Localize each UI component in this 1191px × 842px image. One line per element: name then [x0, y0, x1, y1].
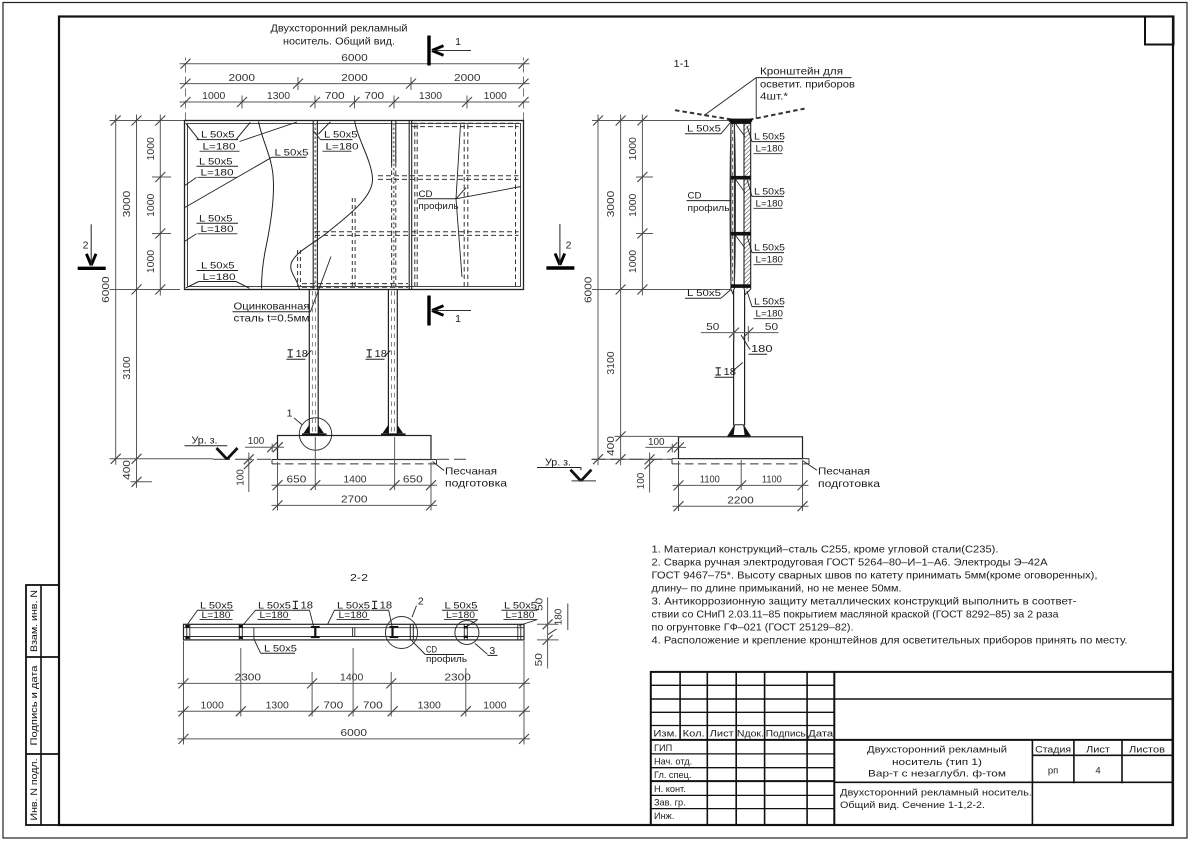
svg-text:ГИП: ГИП [654, 743, 672, 753]
svg-text:400: 400 [121, 460, 133, 480]
svg-text:Двухсторонний рекламный: Двухсторонний рекламный [867, 744, 1007, 755]
svg-text:1100: 1100 [762, 474, 782, 486]
svg-text:ствии со СНиП 2.03.11–85 покры: ствии со СНиП 2.03.11–85 покрытием масля… [652, 609, 1059, 621]
svg-text:осветит. приборов: осветит. приборов [760, 79, 855, 91]
svg-text:6000: 6000 [341, 52, 368, 64]
svg-text:1000: 1000 [627, 193, 639, 216]
svg-text:1000: 1000 [483, 700, 506, 712]
svg-text:профиль: профиль [426, 654, 467, 665]
svg-text:1300: 1300 [418, 700, 441, 712]
svg-text:1300: 1300 [267, 90, 290, 102]
svg-text:Двухсторонний рекламный: Двухсторонний рекламный [271, 23, 408, 35]
svg-text:4шт.*: 4шт.* [760, 91, 788, 103]
svg-text:L 50x5: L 50x5 [324, 130, 358, 141]
svg-text:1100: 1100 [700, 474, 720, 486]
svg-text:1000: 1000 [145, 193, 157, 216]
svg-text:L 50x5: L 50x5 [199, 213, 233, 224]
svg-text:Н. конт.: Н. конт. [654, 784, 686, 794]
svg-text:Вар-т с незаглубл. ф-том: Вар-т с незаглубл. ф-том [868, 769, 1006, 780]
svg-text:L 50x5: L 50x5 [275, 147, 309, 158]
svg-text:650: 650 [403, 473, 423, 485]
svg-text:6000: 6000 [583, 276, 595, 303]
svg-text:Изм.: Изм. [653, 728, 677, 738]
svg-text:L 50x5: L 50x5 [687, 124, 721, 135]
svg-text:Лист: Лист [1086, 745, 1110, 755]
svg-text:L=180: L=180 [756, 255, 784, 266]
svg-text:L 50x5: L 50x5 [754, 297, 785, 308]
svg-text:подготовка: подготовка [818, 478, 880, 490]
svg-text:2000: 2000 [454, 72, 481, 84]
svg-text:50: 50 [706, 321, 719, 333]
svg-text:18: 18 [724, 366, 737, 378]
svg-text:3100: 3100 [121, 356, 133, 379]
svg-text:18: 18 [380, 599, 393, 611]
svg-text:Нач. отд.: Нач. отд. [654, 757, 692, 767]
svg-text:6000: 6000 [100, 276, 112, 303]
svg-text:Подпись и дата: Подпись и дата [29, 666, 39, 746]
svg-text:2700: 2700 [341, 494, 368, 506]
svg-text:1000: 1000 [627, 137, 639, 160]
svg-text:1400: 1400 [343, 473, 366, 485]
svg-text:Общий вид. Сечение 1-1,2-2.: Общий вид. Сечение 1-1,2-2. [840, 800, 985, 811]
svg-text:L 50x5: L 50x5 [199, 156, 233, 167]
svg-text:L 50x5: L 50x5 [201, 261, 235, 272]
svg-text:1400: 1400 [340, 672, 363, 684]
svg-text:носитель. Общий вид.: носитель. Общий вид. [283, 36, 395, 48]
svg-text:1000: 1000 [145, 250, 157, 273]
svg-text:ГОСТ 9467–75*. Высоту сварных: ГОСТ 9467–75*. Высоту сварных швов по ка… [652, 570, 1098, 582]
svg-text:650: 650 [287, 473, 307, 485]
svg-text:100: 100 [648, 436, 665, 448]
svg-text:носитель (тип 1): носитель (тип 1) [892, 757, 982, 768]
svg-text:Гл. спец.: Гл. спец. [654, 770, 691, 780]
svg-text:2200: 2200 [727, 494, 754, 506]
svg-text:3100: 3100 [605, 351, 617, 374]
svg-text:Кронштейн для: Кронштейн для [760, 66, 843, 78]
svg-text:Двухсторонний рекламный носите: Двухсторонний рекламный носитель. [840, 788, 1032, 799]
svg-text:Песчаная: Песчаная [818, 465, 870, 477]
svg-text:L=180: L=180 [756, 144, 784, 155]
svg-text:1. Материал конструкций–сталь: 1. Материал конструкций–сталь С255, кром… [652, 544, 999, 556]
svg-text:Ур. з.: Ур. з. [192, 436, 218, 447]
svg-text:Листов: Листов [1129, 745, 1165, 755]
svg-text:180: 180 [751, 343, 773, 355]
svg-text:1000: 1000 [145, 137, 157, 160]
svg-text:700: 700 [364, 90, 384, 102]
svg-text:рп: рп [1048, 766, 1058, 777]
svg-text:Стадия: Стадия [1035, 745, 1071, 755]
svg-text:100: 100 [234, 469, 246, 486]
svg-text:L 50x5: L 50x5 [754, 243, 785, 254]
svg-text:2000: 2000 [341, 72, 368, 84]
svg-text:L 50x5: L 50x5 [687, 288, 721, 299]
svg-text:180: 180 [553, 609, 565, 626]
svg-text:2300: 2300 [235, 672, 262, 684]
svg-text:CD: CD [688, 191, 702, 202]
svg-text:1000: 1000 [484, 90, 507, 102]
svg-text:50: 50 [765, 321, 778, 333]
svg-text:подготовка: подготовка [445, 477, 507, 489]
svg-text:L 50x5: L 50x5 [201, 130, 235, 141]
svg-text:Оцинкованная: Оцинкованная [234, 301, 310, 313]
svg-text:сталь t=0.5мм: сталь t=0.5мм [234, 313, 310, 325]
svg-text:Ур. з.: Ур. з. [545, 458, 571, 469]
svg-text:Кол.: Кол. [683, 728, 705, 738]
svg-text:4. Расположение и крепление кр: 4. Расположение и крепление кронштейнов … [652, 635, 1128, 647]
svg-text:2. Сварка ручная электродугова: 2. Сварка ручная электродуговая ГОСТ 526… [652, 557, 1048, 569]
svg-text:профиль: профиль [688, 203, 730, 214]
svg-text:Зав. гр.: Зав. гр. [654, 798, 686, 808]
svg-text:18: 18 [296, 348, 309, 360]
svg-text:3000: 3000 [605, 191, 617, 218]
svg-text:Дата: Дата [808, 728, 833, 738]
svg-text:2: 2 [83, 240, 89, 252]
svg-text:400: 400 [605, 436, 617, 456]
svg-text:2300: 2300 [444, 672, 471, 684]
svg-text:L=180: L=180 [201, 168, 234, 179]
svg-text:Инв. N подл.: Инв. N подл. [29, 759, 39, 821]
svg-text:Взам. инв. N: Взам. инв. N [29, 590, 39, 652]
svg-text:700: 700 [363, 700, 383, 712]
svg-text:Инж.: Инж. [654, 811, 674, 821]
svg-text:100: 100 [248, 435, 265, 447]
svg-text:L 50x5: L 50x5 [754, 186, 785, 197]
svg-text:CD: CD [419, 189, 433, 200]
svg-text:1000: 1000 [202, 90, 225, 102]
svg-text:700: 700 [323, 700, 343, 712]
svg-text:L=180: L=180 [201, 224, 234, 235]
svg-text:50: 50 [534, 598, 546, 611]
svg-text:по огрунтовке ГФ–021 (ГОСТ 251: по огрунтовке ГФ–021 (ГОСТ 25129–82). [652, 622, 854, 634]
svg-text:L=180: L=180 [203, 141, 236, 152]
svg-text:Лист: Лист [710, 728, 734, 738]
svg-text:L 50x5: L 50x5 [754, 132, 785, 143]
svg-text:1: 1 [287, 408, 293, 420]
svg-text:1000: 1000 [201, 700, 224, 712]
svg-text:3. Антикоррозионную защиту мет: 3. Антикоррозионную защиту металлических… [652, 596, 1078, 608]
svg-text:6000: 6000 [341, 727, 368, 739]
svg-text:1: 1 [455, 313, 461, 325]
svg-text:1-1: 1-1 [674, 58, 690, 70]
svg-text:1000: 1000 [627, 250, 639, 273]
svg-text:100: 100 [635, 473, 647, 490]
svg-text:4: 4 [1095, 766, 1100, 777]
svg-text:18: 18 [301, 599, 314, 611]
svg-text:2-2: 2-2 [350, 572, 368, 584]
svg-text:L=180: L=180 [326, 141, 359, 152]
svg-text:2000: 2000 [229, 72, 256, 84]
svg-text:3000: 3000 [121, 191, 133, 218]
svg-text:2: 2 [566, 240, 572, 252]
svg-text:Песчаная: Песчаная [445, 466, 497, 478]
svg-text:700: 700 [325, 90, 345, 102]
svg-text:1300: 1300 [266, 700, 289, 712]
svg-text:L 50x5: L 50x5 [264, 643, 297, 654]
svg-text:18: 18 [375, 348, 388, 360]
svg-text:L=180: L=180 [756, 309, 784, 320]
svg-text:длину– по длине примыканий, но: длину– по длине примыканий, но не менее … [652, 583, 902, 595]
svg-text:Nдок.: Nдок. [737, 728, 764, 738]
svg-text:50: 50 [533, 653, 545, 666]
svg-text:профиль: профиль [419, 201, 459, 212]
svg-text:1: 1 [455, 36, 461, 48]
svg-text:Подпись: Подпись [766, 728, 806, 738]
svg-text:2: 2 [418, 596, 424, 608]
svg-text:1300: 1300 [419, 90, 442, 102]
svg-text:L=180: L=180 [756, 198, 784, 209]
